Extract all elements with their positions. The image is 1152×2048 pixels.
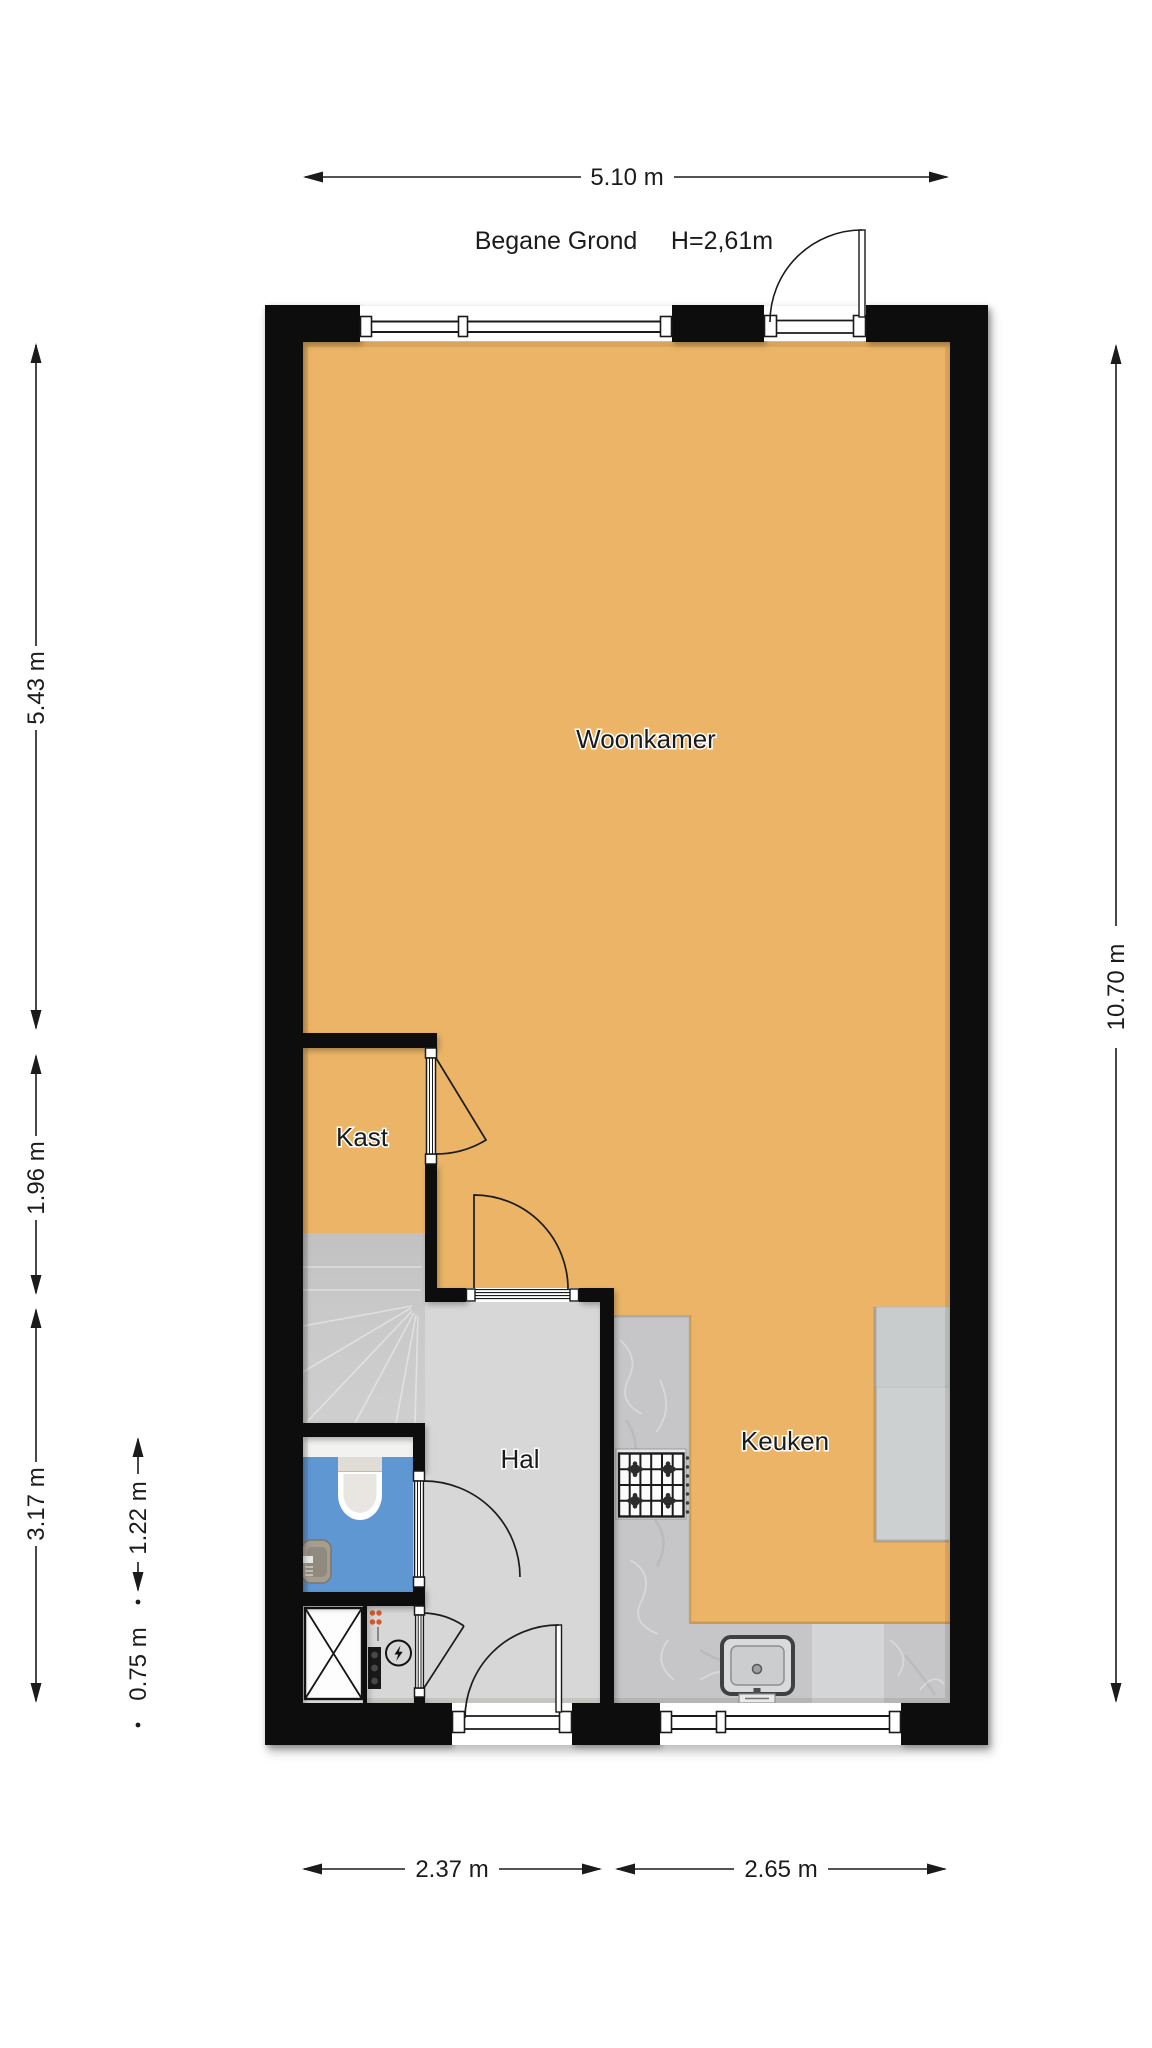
svg-text:Keuken: Keuken	[741, 1426, 829, 1456]
svg-text:1.96 m: 1.96 m	[23, 1141, 50, 1214]
svg-text:3.17 m: 3.17 m	[23, 1467, 50, 1540]
svg-text:10.70 m: 10.70 m	[1103, 944, 1130, 1031]
svg-text:Kast: Kast	[336, 1122, 389, 1152]
svg-text:1.22 m: 1.22 m	[125, 1481, 152, 1554]
svg-text:0.75 m: 0.75 m	[125, 1627, 152, 1700]
svg-text:Begane Grond: Begane Grond	[475, 227, 638, 255]
svg-text:Hal: Hal	[500, 1444, 539, 1474]
svg-text:5.43 m: 5.43 m	[23, 651, 50, 724]
svg-text:2.37 m: 2.37 m	[415, 1856, 488, 1883]
svg-text:2.65 m: 2.65 m	[744, 1856, 817, 1883]
svg-text:5.10 m: 5.10 m	[590, 164, 663, 191]
svg-text:H=2,61m: H=2,61m	[671, 227, 773, 255]
svg-text:Woonkamer: Woonkamer	[576, 724, 716, 754]
